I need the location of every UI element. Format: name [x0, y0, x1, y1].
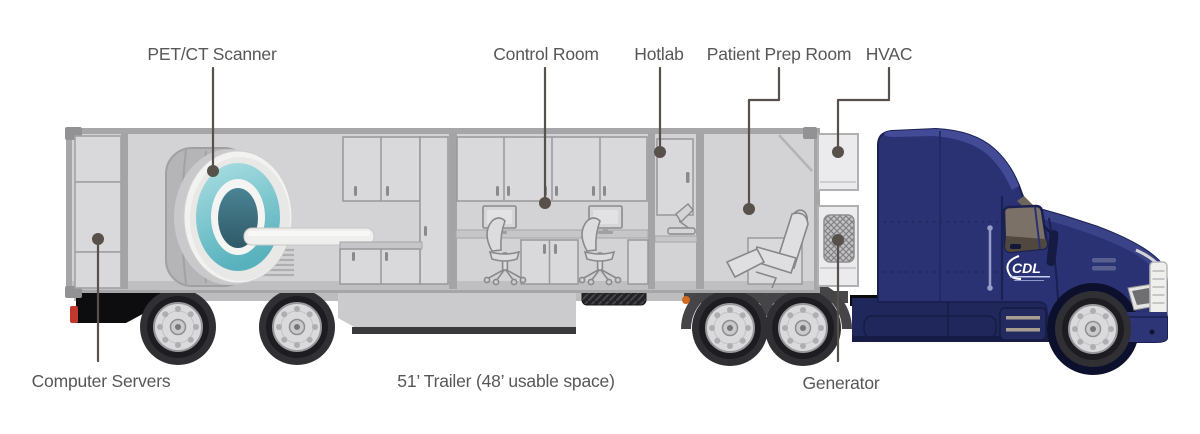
patient-table-highlight	[248, 231, 370, 236]
door-handle	[1010, 244, 1021, 249]
control-desk	[456, 230, 648, 238]
label-hotlab: Hotlab	[634, 44, 683, 65]
grab-rail-bottom-mount	[987, 285, 993, 291]
hood-vent-2	[1092, 266, 1116, 271]
grab-rail-top-mount	[987, 225, 993, 231]
hood-vent-1	[1092, 258, 1116, 263]
logo-tagline	[1014, 280, 1044, 281]
hotlab-cabinet-handle	[686, 172, 690, 183]
hotlab-counter	[655, 236, 697, 242]
truck-tandem-wheel-2	[765, 290, 841, 366]
dot-hvac	[832, 146, 844, 158]
mobile-pet-ct-trailer-diagram: CDL	[0, 0, 1200, 434]
label-computer-servers: Computer Servers	[32, 371, 171, 392]
dot-hotlab	[654, 146, 666, 158]
dot-computer-servers	[92, 233, 104, 245]
amber-marker-light	[682, 296, 690, 304]
label-control-room: Control Room	[493, 44, 599, 65]
truck-tandem-wheel-1	[692, 290, 768, 366]
label-generator: Generator	[803, 373, 880, 394]
lower-cabinet-right	[628, 240, 648, 284]
wall-hotlab-prep	[696, 133, 704, 289]
taillight	[70, 306, 78, 323]
diagram-canvas: CDL	[0, 0, 1200, 434]
dot-control-room	[539, 197, 551, 209]
dot-pet-ct	[207, 165, 219, 177]
label-patient-prep-room: Patient Prep Room	[707, 44, 851, 65]
grille	[1150, 262, 1167, 318]
dot-patient-prep	[743, 203, 755, 215]
fog-light	[1150, 330, 1155, 335]
dot-generator	[832, 234, 844, 246]
wall-scanner-control	[449, 133, 457, 289]
cab-entry-step	[1000, 308, 1046, 340]
trailer-box	[65, 127, 817, 298]
logo-text: CDL	[1012, 260, 1041, 276]
label-hvac: HVAC	[866, 44, 913, 65]
front-top-corner-cap	[803, 127, 817, 139]
logo-underline	[1010, 276, 1050, 278]
storage-box-bottom-rail	[352, 327, 576, 334]
label-pet-ct-scanner: PET/CT Scanner	[147, 44, 276, 65]
trailer-wheel-1	[140, 289, 216, 365]
truck-front-wheel	[1055, 291, 1131, 367]
label-trailer-spec: 51’ Trailer (48’ usable space)	[397, 371, 614, 392]
trailer-wheel-2	[259, 289, 335, 365]
belly-storage-box	[338, 292, 576, 328]
wall-control-hotlab	[648, 133, 655, 289]
wall-servers-scanner	[121, 133, 128, 289]
lower-cabinet	[521, 240, 578, 284]
